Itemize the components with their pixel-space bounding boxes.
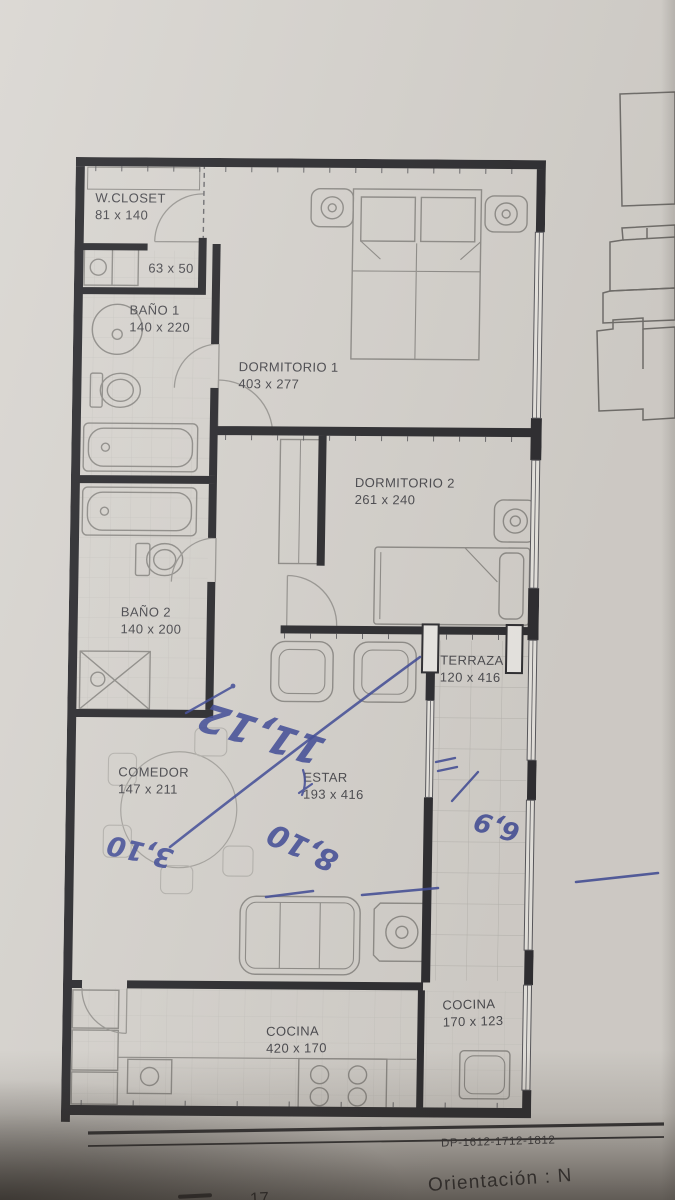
room-label-estar: ESTAR 193 x 416 (303, 769, 364, 804)
room-label-bano2: BAÑO 2 140 x 200 (120, 603, 181, 638)
room-name: BAÑO 1 (129, 302, 179, 317)
room-dims: 120 x 416 (440, 669, 504, 687)
room-dims: 420 x 170 (266, 1039, 327, 1057)
room-name: DORMITORIO 2 (355, 475, 455, 491)
room-dims: 147 x 211 (118, 780, 189, 798)
room-label-wcloset: W.CLOSET 81 x 140 (95, 189, 166, 224)
room-name: DORMITORIO 1 (239, 359, 339, 375)
room-dims: 261 x 240 (355, 491, 455, 509)
key-plan (583, 88, 675, 518)
room-label-cocina-small: COCINA 170 x 123 (442, 995, 503, 1031)
floor-plan: W.CLOSET 81 x 140 63 x 50 BAÑO 1 140 x 2… (61, 157, 546, 1125)
room-label-comedor: COMEDOR 147 x 211 (118, 763, 189, 798)
room-label-cab: 63 x 50 (148, 260, 194, 277)
room-label-cocina-main: COCINA 420 x 170 (266, 1022, 327, 1057)
closet-dashed-front (203, 164, 204, 238)
room-name: COMEDOR (118, 764, 189, 779)
page-number-fragment: 17 (249, 1189, 269, 1200)
room-name: COCINA (266, 1023, 319, 1039)
room-dims: 140 x 220 (129, 319, 190, 337)
cut-off-text-fragment (178, 1193, 212, 1199)
orientation-note: Orientación : N (427, 1165, 573, 1197)
room-dims: 403 x 277 (238, 375, 338, 393)
floorplan-photo: W.CLOSET 81 x 140 63 x 50 BAÑO 1 140 x 2… (0, 0, 675, 1200)
room-name: COCINA (442, 996, 495, 1012)
plan-code: DP-1612-1712-1812 (441, 1134, 556, 1149)
room-label-dormitorio-2: DORMITORIO 2 261 x 240 (355, 474, 455, 509)
bottom-rules (88, 1124, 664, 1146)
room-label-terraza: TERRAZA 120 x 416 (440, 652, 504, 687)
room-name: TERRAZA (440, 653, 504, 668)
room-dims: 140 x 200 (120, 620, 181, 638)
room-dims: 63 x 50 (148, 261, 194, 276)
room-label-dormitorio-1: DORMITORIO 1 403 x 277 (238, 358, 338, 393)
room-dims: 170 x 123 (443, 1012, 504, 1031)
room-name: W.CLOSET (95, 190, 166, 205)
room-label-bano1: BAÑO 1 140 x 220 (129, 301, 190, 336)
room-dims: 193 x 416 (303, 786, 364, 804)
room-dims: 81 x 140 (95, 206, 166, 224)
room-name: BAÑO 2 (121, 604, 171, 619)
